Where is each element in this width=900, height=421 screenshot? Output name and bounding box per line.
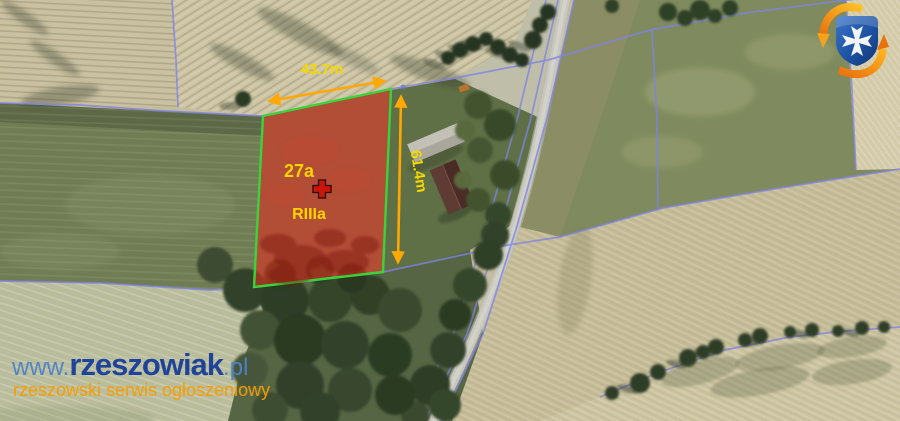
- watermark: www.rzeszowiak.pl: [12, 349, 248, 380]
- watermark-brand: rzeszowiak: [69, 349, 223, 380]
- watermark-tagline: rzeszowski serwis ogłoszeniowy: [13, 381, 270, 399]
- parcel-area-label: 27a: [284, 161, 315, 181]
- watermark-prefix: www.: [12, 356, 69, 380]
- watermark-suffix: .pl: [223, 356, 248, 380]
- width-dimension-label: 43.7m: [301, 61, 344, 78]
- parcel-soil-class-label: RIIIa: [292, 206, 326, 223]
